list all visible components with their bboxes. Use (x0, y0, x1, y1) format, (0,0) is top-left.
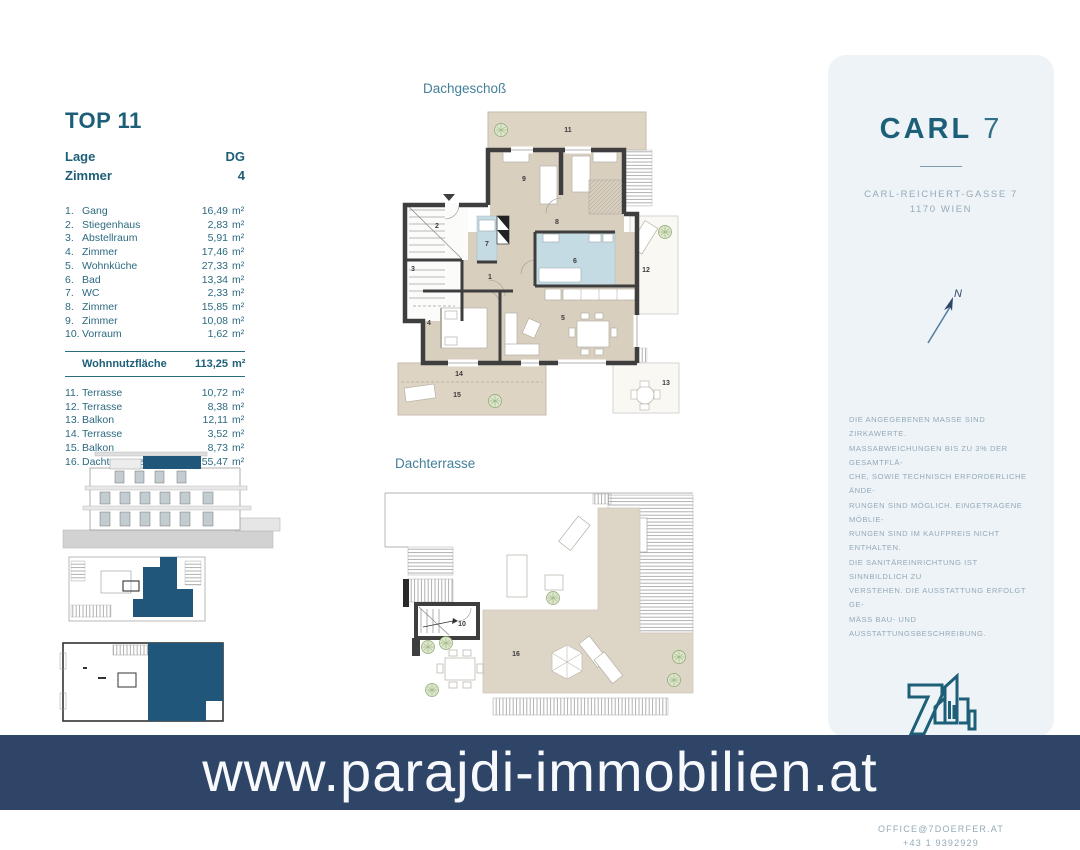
website-url: www.parajdi-immobilien.at (202, 740, 877, 803)
area-row-nm: Terrasse (82, 401, 188, 415)
area-row-un: m² (228, 328, 245, 342)
shaft (497, 216, 509, 244)
divider-line (920, 166, 962, 167)
area-row-nm: Abstellraum (82, 232, 188, 246)
project-name: CARL (880, 113, 973, 145)
area-row-nm: Gang (82, 205, 188, 219)
area-row-un: m² (228, 301, 245, 315)
room-label: 1 (488, 274, 492, 281)
company-contact: OFFICE@7DOERFER.AT +43 1 9392929 (828, 822, 1054, 850)
area-row-un: m² (228, 274, 245, 288)
dachgeschoss-plan-title: Dachgeschoß (423, 81, 506, 96)
room-label: 3 (411, 266, 415, 273)
area-row-un: m² (228, 205, 245, 219)
project-number: 7 (983, 113, 1002, 145)
total-unit: m² (228, 358, 245, 370)
room-label: 2 (435, 223, 439, 230)
area-row-un: m² (228, 246, 245, 260)
plant-icon (426, 684, 439, 697)
area-row-nm: Zimmer (82, 315, 188, 329)
disclaimer-text: DIE ANGEGEBENEN MASSE SIND ZIRKAWERTE. M… (849, 413, 1033, 641)
area-row-nr: 4. (65, 246, 82, 260)
entrance-arrow-icon (443, 194, 455, 201)
unit-title: TOP 11 (65, 108, 245, 134)
area-row-ar: 8,38 (188, 401, 228, 415)
area-row-nr: 10. (65, 328, 82, 342)
plant-icon (547, 592, 560, 605)
meta-row-zimmer: Zimmer 4 (65, 166, 245, 185)
roof-hatch (624, 150, 652, 206)
meta-row-lage: Lage DG (65, 147, 245, 166)
plant-icon (495, 124, 508, 137)
highlighted-attic (143, 456, 201, 469)
area-row-ar: 2,83 (188, 219, 228, 233)
area-row: 8.Zimmer15,85m² (65, 301, 245, 315)
area-row-ar: 13,34 (188, 274, 228, 288)
area-row: 9.Zimmer10,08m² (65, 315, 245, 329)
area-row: 4.Zimmer17,46m² (65, 246, 245, 260)
company-phone: +43 1 9392929 (828, 836, 1054, 850)
keyplan-dachgeschoss (58, 633, 233, 733)
room-area-list: 1.Gang16,49m²2.Stiegenhaus2,83m²3.Abstel… (65, 205, 245, 342)
area-row-nm: WC (82, 287, 188, 301)
room-label: 16 (512, 651, 520, 658)
area-row: 1.Gang16,49m² (65, 205, 245, 219)
area-row: 6.Bad13,34m² (65, 274, 245, 288)
area-row-ar: 12,11 (188, 414, 228, 428)
room-label: 8 (555, 219, 559, 226)
plant-icon (673, 651, 686, 664)
area-row-nm: Bad (82, 274, 188, 288)
area-row-nm: Terrasse (82, 387, 188, 401)
roof-hatch (493, 698, 668, 715)
area-row-nr: 12. (65, 401, 82, 415)
area-row-ar: 15,85 (188, 301, 228, 315)
room-label: 7 (485, 241, 489, 248)
compass-label: N (954, 288, 962, 300)
area-row: 5.Wohnküche27,33m² (65, 260, 245, 274)
unit-meta: Lage DG Zimmer 4 (65, 147, 245, 185)
room-label: 10 (458, 621, 466, 628)
round-table (636, 386, 654, 404)
plant-icon (422, 641, 435, 654)
area-row-nr: 2. (65, 219, 82, 233)
area-row-un: m² (228, 232, 245, 246)
area-row-nr: 6. (65, 274, 82, 288)
total-area: 113,25 (188, 358, 228, 370)
area-row: 12.Terrasse8,38m² (65, 401, 245, 415)
total-living-area-row: Wohnnutzfläche 113,25 m² (65, 351, 245, 377)
area-row-nr: 3. (65, 232, 82, 246)
plant-icon (668, 674, 681, 687)
area-row-nr: 1. (65, 205, 82, 219)
dachterrasse-floorplan: 10 16 (383, 487, 695, 733)
area-row: 11.Terrasse10,72m² (65, 387, 245, 401)
area-row-nr: 8. (65, 301, 82, 315)
terrace-14-15 (398, 363, 546, 415)
area-row-ar: 5,91 (188, 232, 228, 246)
area-row-ar: 2,33 (188, 287, 228, 301)
area-row-nm: Zimmer (82, 301, 188, 315)
area-row-nm: Balkon (82, 414, 188, 428)
project-title: CARL 7 (828, 113, 1054, 146)
area-row-nr: 5. (65, 260, 82, 274)
area-row-un: m² (228, 387, 245, 401)
area-row-un: m² (228, 260, 245, 274)
area-row-ar: 10,08 (188, 315, 228, 329)
dachterrasse-plan-title: Dachterrasse (395, 456, 475, 471)
area-row: 2.Stiegenhaus2,83m² (65, 219, 245, 233)
website-banner: www.parajdi-immobilien.at (0, 735, 1080, 810)
room-label: 6 (573, 258, 577, 265)
project-address-line1: CARL-REICHERT-GASSE 7 (828, 187, 1054, 202)
area-row-un: m² (228, 414, 245, 428)
area-row-ar: 16,49 (188, 205, 228, 219)
room-label: 14 (455, 371, 463, 378)
area-row: 10.Vorraum1,62m² (65, 328, 245, 342)
plant-icon (489, 395, 502, 408)
area-row: 3.Abstellraum5,91m² (65, 232, 245, 246)
room-label: 15 (453, 392, 461, 399)
area-row-ar: 10,72 (188, 387, 228, 401)
area-row-un: m² (228, 401, 245, 415)
company-email: OFFICE@7DOERFER.AT (828, 822, 1054, 836)
room-label: 9 (522, 176, 526, 183)
kitchen-counter (545, 289, 635, 300)
chimney (403, 579, 409, 607)
plant-icon (659, 226, 672, 239)
project-address: CARL-REICHERT-GASSE 7 1170 WIEN (828, 187, 1054, 217)
area-row: 13.Balkon12,11m² (65, 414, 245, 428)
area-row-nr: 7. (65, 287, 82, 301)
area-row-nm: Wohnküche (82, 260, 188, 274)
project-address-line2: 1170 WIEN (828, 202, 1054, 217)
skylight (545, 575, 563, 590)
area-row-un: m² (228, 219, 245, 233)
area-row: 7.WC2,33m² (65, 287, 245, 301)
skylight (507, 555, 527, 597)
room-label: 4 (427, 320, 431, 327)
total-label: Wohnnutzfläche (65, 358, 188, 370)
area-row-ar: 17,46 (188, 246, 228, 260)
meta-label: Lage (65, 147, 95, 166)
roof-hatch (408, 547, 453, 575)
unit-info-block: TOP 11 Lage DG Zimmer 4 1.Gang16,49m²2.S… (65, 108, 245, 469)
room-label: 11 (564, 127, 572, 134)
area-row-nr: 11. (65, 387, 82, 401)
room-label: 5 (561, 315, 565, 322)
room-label: 12 (642, 267, 650, 274)
area-row-nm: Vorraum (82, 328, 188, 342)
area-row-nm: Zimmer (82, 246, 188, 260)
project-panel: CARL 7 CARL-REICHERT-GASSE 7 1170 WIEN N… (828, 55, 1054, 737)
meta-value: 4 (238, 166, 245, 185)
area-row-ar: 1,62 (188, 328, 228, 342)
meta-label: Zimmer (65, 166, 112, 185)
area-row-nr: 13. (65, 414, 82, 428)
area-row-un: m² (228, 287, 245, 301)
area-row-nr: 9. (65, 315, 82, 329)
area-row-nm: Stiegenhaus (82, 219, 188, 233)
area-row-un: m² (228, 315, 245, 329)
plant-icon (440, 637, 453, 650)
room-label: 13 (662, 380, 670, 387)
area-row-ar: 27,33 (188, 260, 228, 274)
north-arrow-icon: N (918, 285, 964, 351)
keyplan-dachterrasse (65, 553, 210, 628)
meta-value: DG (226, 147, 246, 166)
dachgeschoss-floorplan: 11 9 8 2 3 7 1 6 12 4 5 14 15 13 (393, 110, 680, 420)
roof-hatch (408, 579, 453, 602)
